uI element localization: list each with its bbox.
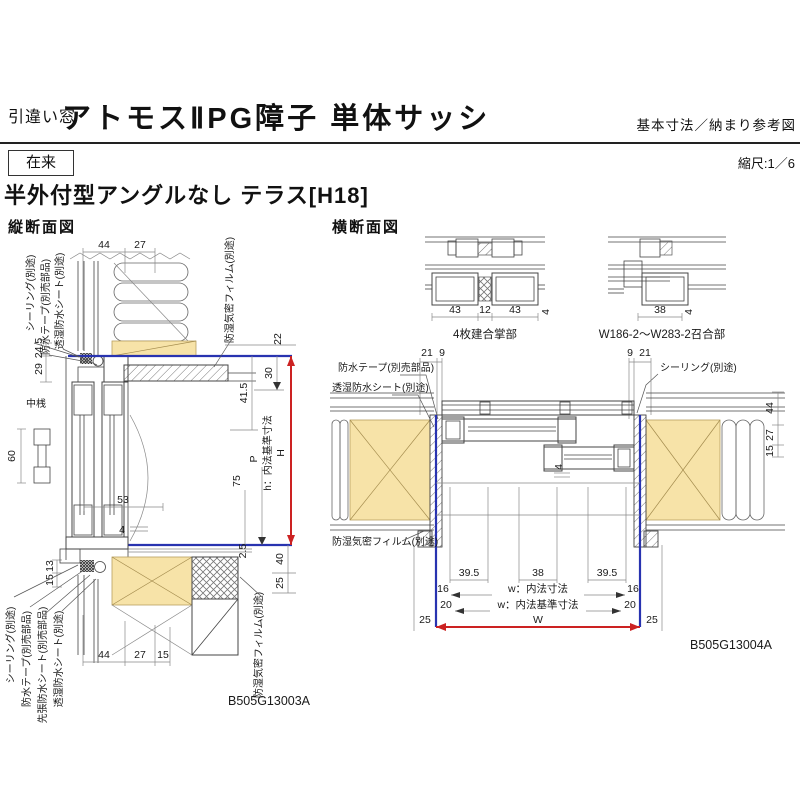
- w-base-label: w：内法基準寸法: [496, 598, 578, 611]
- catalog-page: 引違い窓 アトモスⅡPG障子 単体サッシ 基本寸法／納まり参考図 在来 縮尺:1…: [0, 0, 800, 800]
- sealing-label: シーリング(別途): [660, 361, 737, 374]
- dim-top-right-21: 21: [639, 347, 651, 359]
- left-dim-lines: [40, 343, 62, 587]
- dim-bottom-44: 44: [98, 649, 110, 661]
- vertical-drawing-id: B505G13003A: [228, 694, 311, 708]
- dim-top-44: 44: [98, 239, 110, 251]
- dim-22: 22: [272, 333, 284, 345]
- horizontal-section-drawing: 43 12 43 4 4枚建合掌部 38: [330, 215, 800, 675]
- dim-13: 13: [44, 560, 56, 572]
- dim-20-left: 20: [440, 599, 452, 611]
- sill-structure: [60, 537, 238, 663]
- film-bottom-label: 防湿気密フィルム(別途): [252, 592, 265, 698]
- scale-label: 縮尺:1／6: [738, 153, 795, 172]
- dim-40: 40: [274, 553, 286, 565]
- dim-mid-4: 4: [553, 464, 565, 470]
- dim-top-right-9: 9: [627, 347, 633, 359]
- sealing-bottom-label: シーリング(別途): [4, 607, 17, 684]
- detail-meeting: 38 4 W186-2～W283-2召合部: [599, 237, 726, 341]
- dim-gassho-4: 4: [540, 309, 552, 315]
- dim-bottom-27: 27: [134, 649, 146, 661]
- header-divider: [0, 142, 800, 144]
- section-title: 半外付型アングルなし テラス[H18]: [4, 178, 369, 210]
- dim-24-5: 24.5: [33, 338, 45, 359]
- film-top-label: 防湿気密フィルム(別途): [223, 237, 236, 343]
- presheet-bottom-label: 先張防水シート(別売部品): [36, 607, 49, 724]
- dim-meeting-38: 38: [654, 304, 666, 316]
- page-title: アトモスⅡPG障子 単体サッシ: [62, 95, 490, 137]
- sheet-top-label: 透湿防水シート(別途): [53, 253, 66, 350]
- w-inner-label: w：内法寸法: [507, 582, 568, 595]
- gassho-caption: 4枚建合掌部: [453, 327, 517, 341]
- dim-H: H: [275, 449, 287, 457]
- dim-right-15: 15: [764, 445, 776, 457]
- dim-41-5: 41.5: [238, 383, 250, 404]
- dim-15: 15: [44, 574, 56, 586]
- dim-39-5-right: 39.5: [597, 567, 618, 579]
- dim-60: 60: [6, 450, 18, 462]
- dim-gassho-43r: 43: [509, 304, 521, 316]
- dim-bottom-15: 15: [157, 649, 169, 661]
- dim-39-5-left: 39.5: [459, 567, 480, 579]
- horizontal-drawing-id: B505G13004A: [690, 638, 773, 652]
- dim-P: P: [248, 455, 260, 462]
- sash-plan: [436, 401, 640, 515]
- detail-gassho: 43 12 43 4 4枚建合掌部: [425, 237, 552, 341]
- dim-75: 75: [231, 475, 243, 487]
- dim-right-44: 44: [764, 402, 776, 414]
- dim-20-right: 20: [624, 599, 636, 611]
- vertical-section-drawing: 中桟 60 44 27 シーリング(別途) 防水テープ: [0, 215, 330, 725]
- sheet-bottom-label: 透湿防水シート(別途): [52, 611, 65, 708]
- page-subtitle: 基本寸法／納まり参考図: [637, 114, 797, 134]
- film-label: 防湿気密フィルム(別途): [332, 535, 438, 548]
- window-frame-section: [66, 353, 148, 560]
- left-wall: [330, 393, 434, 530]
- sheet-label: 透湿防水シート(別途): [332, 381, 429, 394]
- dim-gassho-43l: 43: [449, 304, 461, 316]
- sealing-top-label: シーリング(別途): [24, 255, 37, 332]
- tape-bottom-label: 防水テープ(別売部品): [20, 611, 33, 707]
- dim-top-27: 27: [134, 239, 146, 251]
- dim-right-27: 27: [764, 429, 776, 441]
- dim-29: 29: [33, 363, 45, 375]
- dim-25-left: 25: [419, 614, 431, 626]
- dim-30: 30: [263, 367, 275, 379]
- dim-53: 53: [117, 494, 129, 506]
- dim-4: 4: [119, 524, 125, 536]
- dim-38: 38: [532, 567, 544, 579]
- h-axis-label: h：内法基準寸法: [261, 415, 274, 491]
- dim-25: 25: [274, 577, 286, 589]
- mullion-label: 中桟: [26, 397, 46, 410]
- dim-top-left-21: 21: [421, 347, 433, 359]
- mullion-section: 中桟 60: [6, 397, 50, 483]
- dim-2-5: 2.5: [237, 544, 249, 559]
- dim-top-left-9: 9: [439, 347, 445, 359]
- meeting-caption: W186-2～W283-2召合部: [599, 327, 726, 341]
- construction-badge: 在来: [8, 150, 74, 176]
- dim-meeting-4: 4: [683, 309, 695, 315]
- dim-25-right: 25: [646, 614, 658, 626]
- dim-16-left: 16: [437, 583, 449, 595]
- dim-gassho-12: 12: [479, 304, 491, 316]
- dim-16-right: 16: [627, 583, 639, 595]
- dim-W: W: [533, 614, 543, 626]
